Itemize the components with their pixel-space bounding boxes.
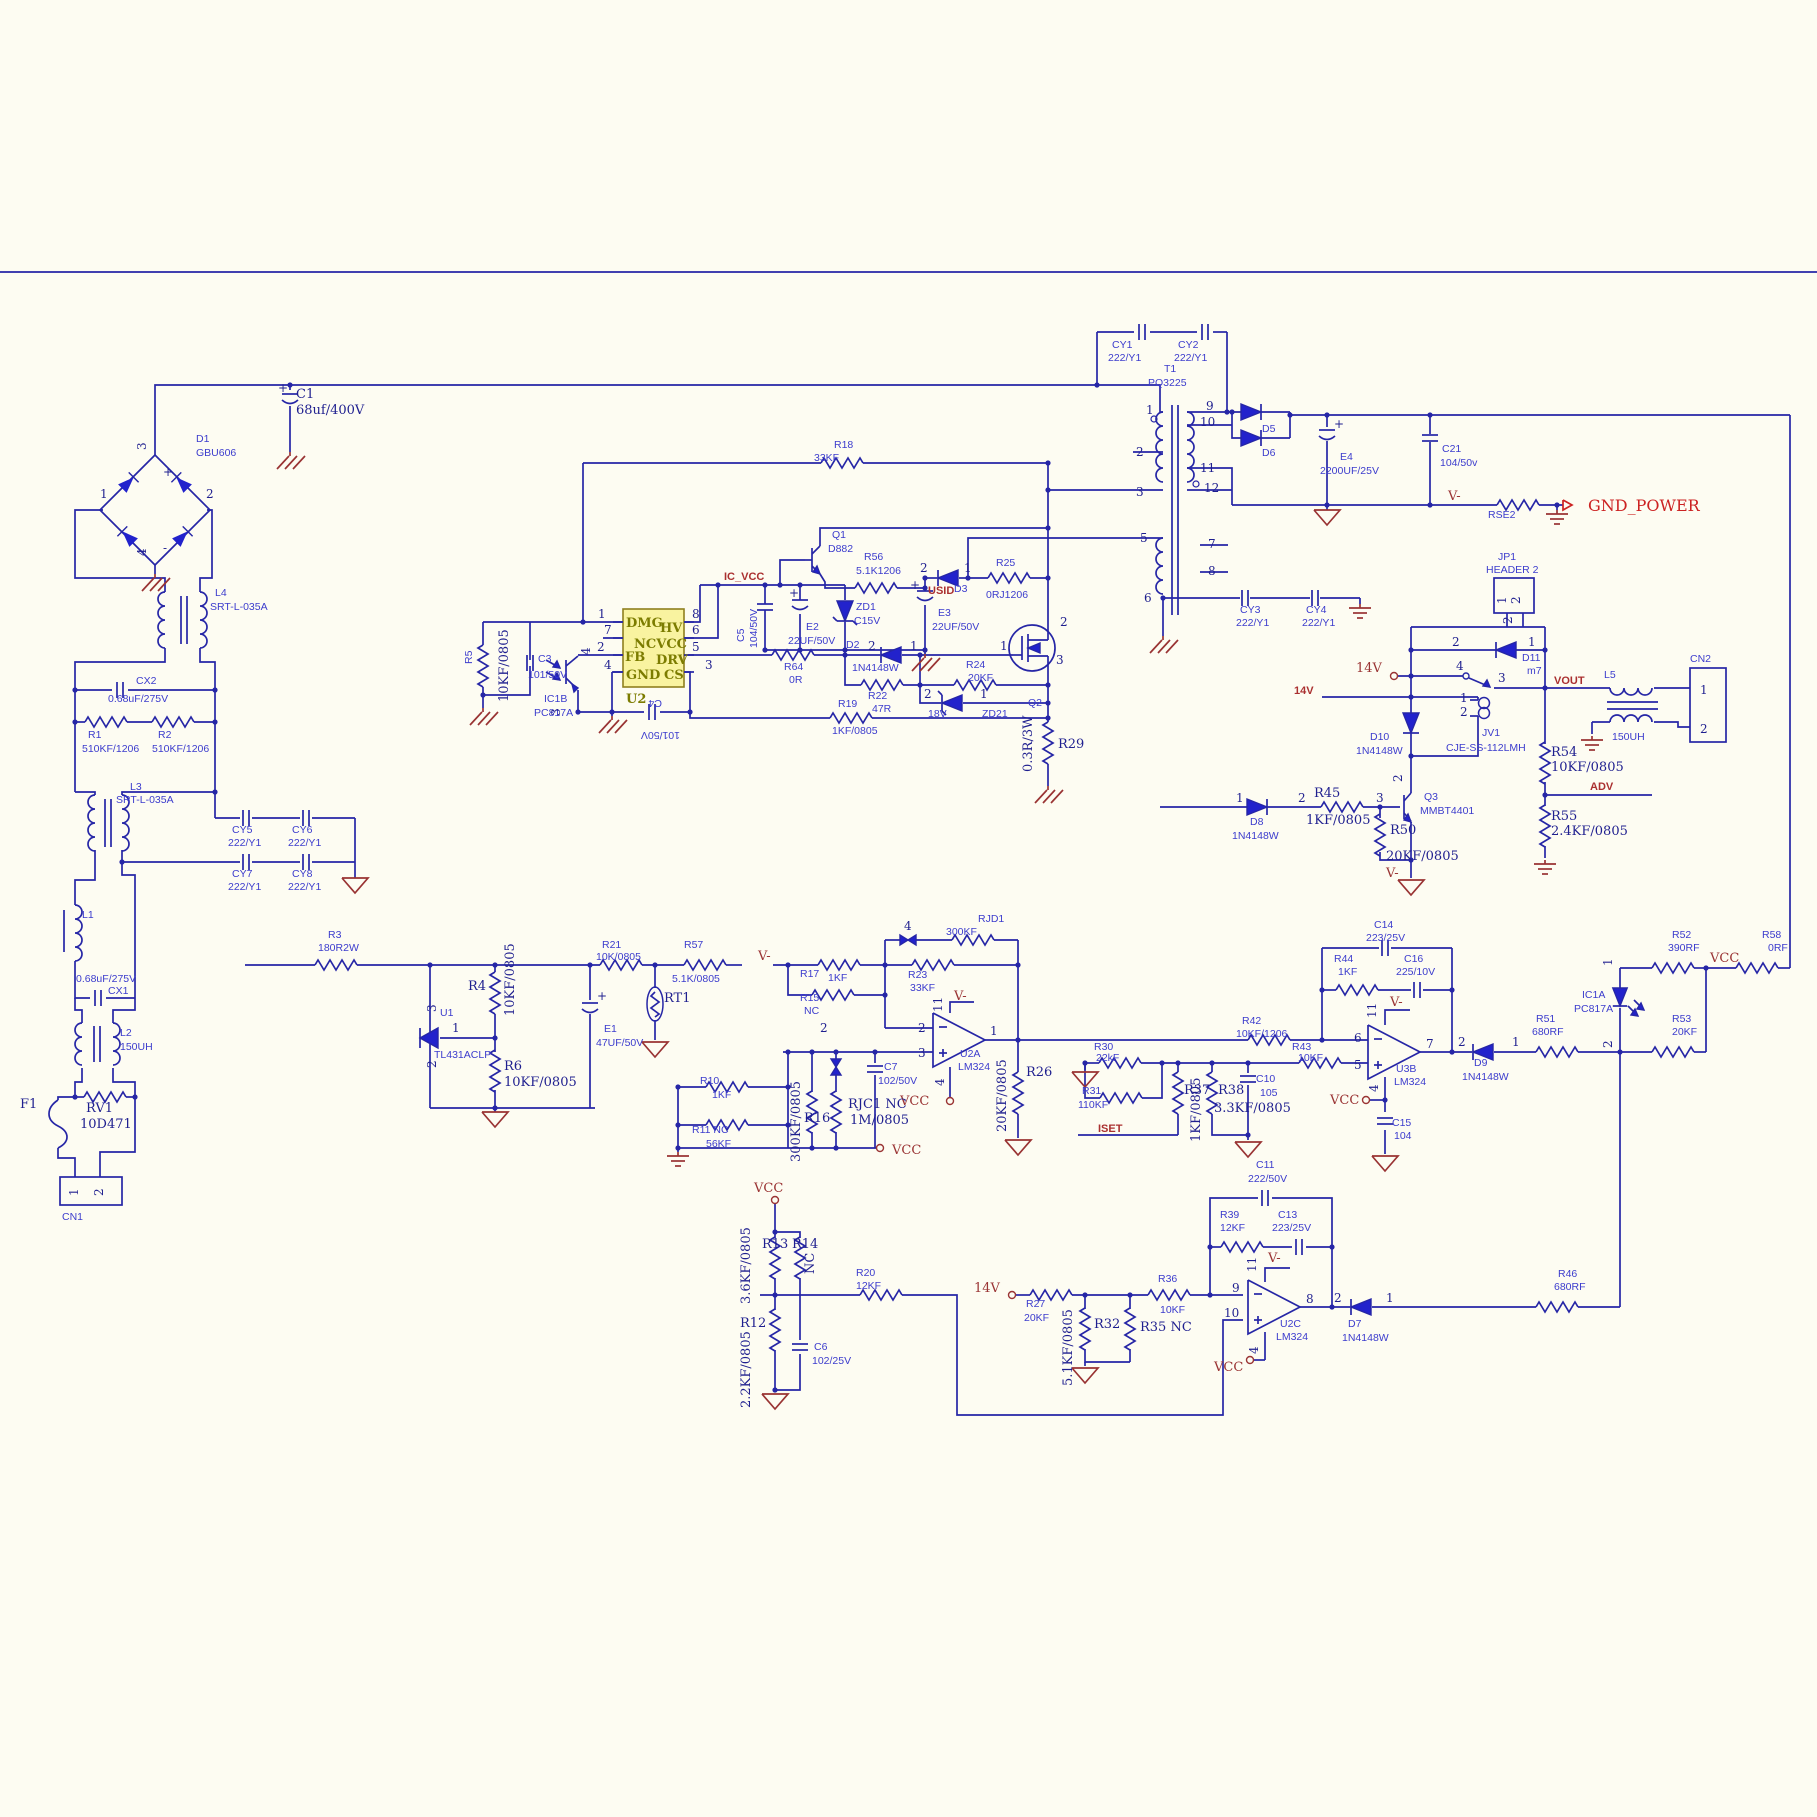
junction-dot — [609, 709, 614, 714]
label-1: 1 — [598, 607, 606, 621]
label-2: 2 — [1298, 791, 1306, 805]
label-r16: R16 — [804, 1111, 830, 1126]
transformer-T1-secondary — [1187, 412, 1194, 482]
junction-dot — [772, 1229, 777, 1234]
label-510kf-1206: 510KF/1206 — [82, 743, 139, 755]
junction-dot — [882, 962, 887, 967]
label-rjd1: RJD1 — [978, 913, 1004, 925]
label-2: 2 — [206, 487, 214, 501]
resistor-R46 — [1536, 1302, 1578, 1312]
label-20kf-0805: 20KF/0805 — [995, 1059, 1010, 1132]
junction-dot — [1703, 965, 1708, 970]
junction-dot — [872, 1049, 877, 1054]
label-fb: FB — [625, 650, 645, 665]
choke-L2-a — [75, 1023, 82, 1065]
junction-dot — [132, 1094, 137, 1099]
label-2: 2 — [1509, 596, 1523, 604]
label-vcc: VCC — [1709, 951, 1739, 966]
label-2: 2 — [1060, 615, 1068, 629]
label-r42: R42 — [1242, 1015, 1261, 1027]
label-2-4kf-0805: 2.4KF/0805 — [1551, 824, 1628, 839]
label-c15: C15 — [1392, 1117, 1411, 1129]
resistor-R22 — [861, 680, 903, 690]
junction-dot — [965, 575, 970, 580]
label-r53: R53 — [1672, 1013, 1691, 1025]
label-9: 9 — [1232, 1281, 1240, 1295]
label-3: 3 — [918, 1046, 926, 1060]
junction-dot — [1015, 1037, 1020, 1042]
label-390rf: 390RF — [1668, 942, 1700, 954]
label-22kf: 22kF — [1096, 1052, 1119, 1064]
resistor-R50 — [1375, 814, 1385, 856]
label-r57: R57 — [684, 939, 703, 951]
label-r24: R24 — [966, 659, 985, 671]
junction-dot — [1319, 1037, 1324, 1042]
label-rt1: RT1 — [664, 991, 691, 1006]
net-circle-14v-bottom — [1009, 1292, 1016, 1299]
transformer-T1-aux — [1156, 538, 1163, 594]
label-101-50v: 101/50V — [528, 669, 567, 681]
junction-dot — [922, 647, 927, 652]
label-10kf-0805: 10KF/0805 — [497, 629, 512, 702]
label-1: 1 — [67, 1188, 81, 1196]
label-180r2w: 180R2W — [318, 942, 359, 954]
label-10d471: 10D471 — [80, 1117, 132, 1132]
resistor-R1 — [85, 717, 127, 727]
label-d2: D2 — [846, 639, 860, 651]
label-r4: R4 — [468, 979, 486, 994]
label-1kf-0805: 1KF/0805 — [1189, 1078, 1204, 1142]
junction-dot — [587, 962, 592, 967]
label-1: 1 — [980, 687, 988, 701]
label-2: 2 — [924, 687, 932, 701]
label-r18: R18 — [834, 439, 853, 451]
junction-dot — [777, 582, 782, 587]
resistor-R19 — [830, 713, 872, 723]
zener-ZD1 — [837, 601, 853, 621]
label-c13: C13 — [1278, 1209, 1297, 1221]
resistor-R36 — [1148, 1290, 1190, 1300]
label-rjc1-nc: RJC1 NC — [848, 1097, 907, 1112]
label-4: 4 — [604, 658, 612, 672]
ground-triangle-R6 — [482, 1112, 508, 1127]
label-4: 4 — [579, 647, 593, 655]
choke-L5-a — [1610, 688, 1652, 695]
label-r32: R32 — [1094, 1317, 1120, 1332]
label-q2: Q2 — [1028, 697, 1042, 709]
label-v-: V- — [1385, 866, 1399, 881]
choke-L5-b — [1610, 715, 1652, 722]
inductor-L1 — [75, 905, 82, 961]
label-1: 1 — [1512, 1035, 1520, 1049]
label-c7: C7 — [884, 1061, 898, 1073]
label-m7: m7 — [1527, 665, 1542, 677]
label-e1: E1 — [604, 1023, 617, 1035]
junction-dot — [1045, 682, 1050, 687]
label-ic1a: IC1A — [1582, 989, 1605, 1001]
junction-dot — [772, 1292, 777, 1297]
label-1kf-0805: 1KF/0805 — [1306, 813, 1370, 828]
label-47uf-50v: 47UF/50V — [596, 1037, 643, 1049]
label-47r: 47R — [872, 703, 892, 715]
label-1m-0805: 1M/0805 — [850, 1113, 909, 1128]
label-2: 2 — [1391, 774, 1405, 782]
wire — [1085, 1349, 1130, 1362]
capacitor-E2 — [792, 606, 808, 610]
label-lm324: LM324 — [1276, 1331, 1308, 1343]
label-10: 10 — [1224, 1306, 1239, 1320]
resistor-RJC1 — [831, 1091, 841, 1133]
label-14v: 14V — [1356, 661, 1383, 676]
label-4: 4 — [933, 1078, 947, 1086]
wire — [684, 585, 718, 638]
label-r52: R52 — [1672, 929, 1691, 941]
label-r21: R21 — [602, 939, 621, 951]
label-3: 3 — [1498, 671, 1506, 685]
label-srt-l-035a: SRT-L-035A — [116, 794, 174, 806]
label-1: 1 — [100, 487, 108, 501]
resistor-R45 — [1321, 802, 1363, 812]
label--: + — [163, 465, 173, 479]
ground-triangle-CY8 — [342, 878, 368, 893]
resistor-R57 — [684, 960, 726, 970]
junction-dot — [1324, 502, 1329, 507]
junction-dot — [809, 1049, 814, 1054]
label-r36: R36 — [1158, 1273, 1177, 1285]
label-0-68uf-275v: 0.68uF/275V — [76, 973, 136, 985]
label-33kf: 33KF — [814, 452, 839, 464]
label-1kf-0805: 1KF/0805 — [832, 725, 878, 737]
label-68uf-400v: 68uf/400V — [296, 403, 365, 418]
label-v-: V- — [953, 989, 967, 1004]
label-r12: R12 — [740, 1316, 766, 1331]
label-20kf: 20KF — [1024, 1312, 1049, 1324]
label-7: 7 — [604, 623, 612, 637]
label-cy5: CY5 — [232, 824, 253, 836]
label-104-50v: 104/50v — [1440, 457, 1478, 469]
junction-dot — [1617, 1049, 1622, 1054]
label-222-50v: 222/50V — [1248, 1173, 1287, 1185]
transformer-T1-primary — [1156, 412, 1163, 482]
label-d9: D9 — [1474, 1057, 1488, 1069]
label-d10: D10 — [1370, 731, 1389, 743]
label-2: 2 — [1458, 1035, 1466, 1049]
label-header-2: HEADER 2 — [1486, 564, 1539, 576]
label-r46: R46 — [1558, 1268, 1577, 1280]
net-flag-gnd-power — [1563, 500, 1572, 510]
label-v-: V- — [757, 949, 771, 964]
label-4: 4 — [1367, 1084, 1381, 1092]
label-u2c: U2C — [1280, 1318, 1301, 1330]
label-r26: R26 — [1026, 1065, 1052, 1080]
label-c14: C14 — [1374, 919, 1393, 931]
label-2: 2 — [92, 1188, 106, 1196]
label-8: 8 — [1208, 564, 1216, 578]
schematic-canvas: +C168uf/400VD1GBU6063124+-L4SRT-L-035ACX… — [0, 0, 1817, 1817]
label-u3b: U3B — [1396, 1063, 1416, 1075]
junction-dot — [427, 962, 432, 967]
label-c4: C4 — [648, 697, 662, 709]
label-1: 1 — [1000, 639, 1008, 653]
junction-dot — [842, 652, 847, 657]
resistor-R26 — [1013, 1072, 1023, 1114]
label-3: 3 — [425, 1004, 439, 1012]
wire — [75, 1068, 82, 1097]
resistor-R5 — [478, 645, 488, 687]
label-2: 2 — [1460, 705, 1468, 719]
resistor-R54 — [1540, 742, 1550, 784]
label-8: 8 — [692, 607, 700, 621]
choke-L2-b — [113, 1023, 120, 1065]
label-rv1: RV1 — [86, 1101, 113, 1116]
label-2: 2 — [425, 1060, 439, 1068]
label-5-1k1206: 5.1K1206 — [856, 565, 901, 577]
wire — [58, 1148, 75, 1177]
label-11: 11 — [931, 997, 945, 1012]
label-10kf: 10KF — [1160, 1304, 1185, 1316]
label-0rj1206: 0RJ1206 — [986, 589, 1028, 601]
choke-L4-a — [158, 592, 165, 648]
junction-dot — [1324, 412, 1329, 417]
label-d6: D6 — [1262, 447, 1276, 459]
label-1n4148w: 1N4148W — [1232, 830, 1279, 842]
junction-dot — [1554, 502, 1559, 507]
label-gnd: GND — [626, 668, 660, 683]
junction-dot — [72, 1094, 77, 1099]
resistor-R12 — [770, 1309, 780, 1351]
label-d11: D11 — [1522, 652, 1541, 664]
junction-dot — [1045, 575, 1050, 580]
label-r22: R22 — [868, 690, 887, 702]
junction-dot — [1542, 647, 1547, 652]
label-11: 11 — [1365, 1003, 1379, 1018]
choke-L3-a — [88, 795, 95, 851]
resistor-R6 — [490, 1050, 500, 1092]
label-v-: V- — [1267, 1251, 1281, 1266]
junction-dot — [1224, 409, 1229, 414]
label-20kf: 20KF — [1672, 1026, 1697, 1038]
wire — [1385, 1010, 1410, 1025]
label-ic-vcc: IC_VCC — [724, 571, 764, 583]
optocoupler-IC1B-arrow — [572, 684, 578, 692]
wire — [684, 672, 690, 712]
label-r11-nc: R11 NC — [692, 1124, 729, 1136]
label-5: 5 — [1140, 531, 1148, 545]
ground-triangle-C15 — [1372, 1156, 1398, 1171]
label-150uh: 150UH — [120, 1041, 153, 1053]
junction-dot — [675, 1084, 680, 1089]
label-7: 7 — [1208, 537, 1216, 551]
diode-D6 — [1241, 430, 1261, 446]
label-22uf-50v: 22UF/50V — [932, 621, 979, 633]
junction-dot — [1427, 412, 1432, 417]
label-r15: R15 — [800, 992, 819, 1004]
ground-triangle-E4 — [1314, 510, 1340, 525]
relay-JV1-contact — [1463, 673, 1469, 679]
junction-dot — [1160, 595, 1165, 600]
label-cy7: CY7 — [232, 868, 253, 880]
label-r29: R29 — [1058, 737, 1084, 752]
label-c6: C6 — [814, 1341, 828, 1353]
ground-triangle-C10 — [1235, 1142, 1261, 1157]
wire — [1232, 425, 1241, 438]
label-1: 1 — [452, 1021, 460, 1035]
junction-dot — [833, 1049, 838, 1054]
junction-dot — [1408, 753, 1413, 758]
resistor-R52 — [1652, 963, 1694, 973]
junction-dot — [1045, 700, 1050, 705]
label-r39: R39 — [1220, 1209, 1239, 1221]
label-10kf-1206: 10KF/1206 — [1236, 1028, 1288, 1040]
label-r17: R17 — [800, 968, 819, 980]
label-vcc: VCC — [753, 1181, 783, 1196]
junction-dot — [492, 962, 497, 967]
label-zd1: ZD1 — [856, 601, 876, 613]
label-d1: D1 — [196, 433, 210, 445]
label-0r: 0R — [789, 674, 803, 686]
label-102-50v: 102/50V — [878, 1075, 917, 1087]
label-2: 2 — [1334, 1291, 1342, 1305]
bridge-rectifier-D1 — [100, 455, 210, 565]
junction-dot — [72, 687, 77, 692]
net-circle-vcc-u3b — [1363, 1097, 1370, 1104]
label-5: 5 — [692, 640, 700, 654]
fuse-F1 — [49, 1100, 67, 1148]
label-e3: E3 — [938, 607, 951, 619]
label-cx1: CX1 — [108, 985, 129, 997]
label-lm324: LM324 — [958, 1061, 990, 1073]
resistor-R51 — [1536, 1047, 1578, 1057]
label-1n4148w: 1N4148W — [852, 662, 899, 674]
wire — [775, 1354, 800, 1390]
ground-triangle-R12 — [762, 1394, 788, 1409]
label-10kf-0805: 10KF/0805 — [504, 1075, 577, 1090]
label--: + — [789, 586, 799, 600]
label-r10: R10 — [700, 1075, 719, 1087]
label-1: 1 — [1495, 596, 1509, 604]
label-r56: R56 — [864, 551, 883, 563]
junction-dot — [1245, 1060, 1250, 1065]
label-zd21: ZD21 — [982, 708, 1008, 720]
junction-dot — [1127, 1292, 1132, 1297]
label-2200uf-25v: 2200UF/25V — [1320, 465, 1379, 477]
junction-dot — [1159, 1060, 1164, 1065]
label-223-25v: 223/25V — [1272, 1222, 1311, 1234]
junction-dot — [1207, 1244, 1212, 1249]
label-2-2kf-0805: 2.2KF/0805 — [739, 1331, 754, 1408]
label-d7: D7 — [1348, 1318, 1362, 1330]
label-q3: Q3 — [1424, 791, 1438, 803]
label-vcc: VCC — [1329, 1093, 1359, 1108]
label-4: 4 — [904, 919, 912, 933]
label-cy6: CY6 — [292, 824, 313, 836]
junction-dot — [492, 1035, 497, 1040]
junction-dot — [917, 652, 922, 657]
label-2: 2 — [1501, 616, 1515, 624]
junction-dot — [1045, 487, 1050, 492]
label-d8: D8 — [1250, 816, 1264, 828]
label-2: 2 — [1700, 722, 1708, 736]
junction-dot — [1287, 412, 1292, 417]
label-1: 1 — [1236, 791, 1244, 805]
label-r23: R23 — [908, 969, 927, 981]
label-c1: C1 — [296, 387, 314, 402]
label-33kf: 33KF — [910, 982, 935, 994]
label-r20: R20 — [856, 1267, 875, 1279]
label-102-25v: 102/25V — [812, 1355, 851, 1367]
label-6: 6 — [1144, 591, 1152, 605]
label-r44: R44 — [1334, 953, 1353, 965]
label-300kf: 300KF — [946, 926, 977, 938]
label--: + — [278, 381, 288, 395]
junction-dot — [580, 619, 585, 624]
label-e2: E2 — [806, 621, 819, 633]
label-c21: C21 — [1442, 443, 1461, 455]
label-1kf: 1KF — [828, 972, 847, 984]
label-14v: 14V — [974, 1281, 1001, 1296]
label-7: 7 — [1426, 1037, 1434, 1051]
label-105: 105 — [1260, 1087, 1278, 1099]
label-gnd-power: GND_POWER — [1588, 496, 1701, 515]
nc-jumper-RJD1 — [908, 935, 916, 945]
label-2: 2 — [820, 1021, 828, 1035]
junction-dot — [287, 382, 292, 387]
diode-D11 — [1496, 642, 1516, 658]
label-dmg: DMG — [626, 616, 663, 631]
junction-dot — [480, 692, 485, 697]
label-cs: CS — [664, 668, 684, 683]
junction-dot — [1427, 502, 1432, 507]
net-circle-14v — [1391, 673, 1398, 680]
label-5-1kf-0805: 5.1KF/0805 — [1061, 1309, 1076, 1386]
junction-dot — [687, 709, 692, 714]
junction-dot — [1408, 694, 1413, 699]
junction-dot — [1377, 804, 1382, 809]
label-12kf: 12KF — [856, 1280, 881, 1292]
label-r45: R45 — [1314, 786, 1340, 801]
resistor-R53 — [1652, 1047, 1694, 1057]
junction-dot — [833, 1145, 838, 1150]
label-q1: Q1 — [832, 529, 846, 541]
label-2: 2 — [1136, 445, 1144, 459]
label-iset: ISET — [1098, 1123, 1123, 1135]
relay-JV1-blade-arrow — [1483, 680, 1490, 687]
junction-dot — [72, 719, 77, 724]
label-222-y1: 222/Y1 — [1108, 352, 1141, 364]
resistor-R29 — [1043, 722, 1053, 764]
wire — [200, 510, 212, 592]
resistor-R39 — [1221, 1242, 1263, 1252]
header-JP1 — [1494, 578, 1534, 613]
diode-D8 — [1247, 799, 1267, 815]
label-22uf-50v: 22UF/50V — [788, 635, 835, 647]
junction-dot — [1449, 1049, 1454, 1054]
label-l2: L2 — [120, 1027, 132, 1039]
label-1: 1 — [990, 1024, 998, 1038]
label-101-50v: 101/50V — [641, 729, 680, 741]
label-r51: R51 — [1536, 1013, 1555, 1025]
label-10k-0805: 10K/0805 — [596, 951, 641, 963]
label-222-y1: 222/Y1 — [228, 881, 261, 893]
label-3-3kf-0805: 3.3KF/0805 — [1214, 1101, 1291, 1116]
label-r55: R55 — [1551, 809, 1577, 824]
wire — [75, 792, 95, 795]
label-2: 2 — [920, 561, 928, 575]
wire — [75, 648, 165, 792]
zener-ZD21 — [938, 691, 942, 695]
junction-dot — [1542, 792, 1547, 797]
junction-dot — [1329, 1244, 1334, 1249]
